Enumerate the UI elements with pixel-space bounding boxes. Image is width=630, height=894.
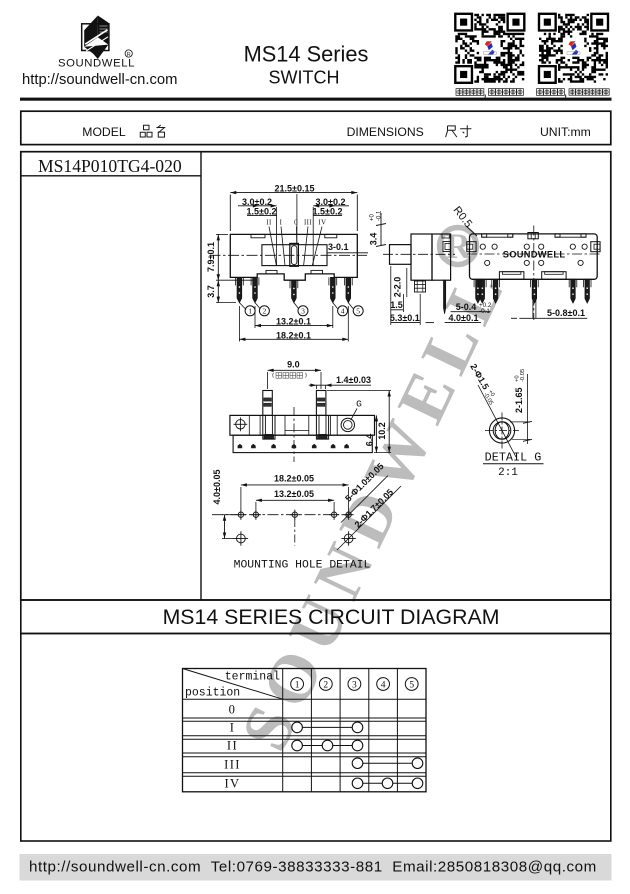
svg-text:-0.1: -0.1 [377,210,383,221]
svg-text:1: 1 [295,680,300,690]
svg-text:10.2: 10.2 [377,422,387,440]
svg-text:R: R [127,52,131,58]
svg-text:2-1.65: 2-1.65 [514,387,524,413]
svg-text:I: I [280,220,283,227]
svg-text:4.0±0.1: 4.0±0.1 [449,313,479,323]
svg-text:3: 3 [301,307,305,316]
svg-text:UNIT:mm: UNIT:mm [540,125,591,139]
svg-text:http://soundwell-cn.com: http://soundwell-cn.com [22,72,177,88]
svg-text:+0: +0 [370,213,376,221]
svg-text:7.9±0.1: 7.9±0.1 [206,242,216,272]
svg-text:SOUNDWELL: SOUNDWELL [58,58,135,70]
svg-text:1: 1 [248,307,252,316]
svg-text:0: 0 [294,220,298,227]
svg-text:II: II [266,220,272,227]
svg-text:5.3±0.1: 5.3±0.1 [390,313,420,323]
svg-text:5: 5 [356,307,360,316]
svg-text:0: 0 [229,702,237,716]
svg-text:21.5±0.15: 21.5±0.15 [275,184,315,194]
svg-text:3.7: 3.7 [206,285,216,298]
svg-text:5-0.8±0.1: 5-0.8±0.1 [547,308,585,318]
svg-text:R: R [445,226,472,266]
svg-text:2:1: 2:1 [498,467,518,479]
svg-text:2: 2 [263,307,267,316]
svg-text:position: position [185,687,240,700]
svg-text:4.0±0.05: 4.0±0.05 [212,470,222,505]
svg-text:terminal: terminal [225,671,280,684]
svg-text:2-2.0: 2-2.0 [393,277,403,298]
svg-text:http://soundwell-cn.com Tel:0: http://soundwell-cn.com Tel:0769-3883333… [29,859,597,876]
svg-text:MS14 Series: MS14 Series [244,42,369,67]
svg-text:5-0.4: 5-0.4 [456,302,477,312]
svg-text:4: 4 [381,680,386,690]
svg-text:MS14P010TG4-020: MS14P010TG4-020 [38,156,182,176]
svg-text:IV: IV [224,777,240,791]
svg-text:-0.05: -0.05 [520,369,526,382]
svg-text:4: 4 [341,307,345,316]
svg-text:3.4: 3.4 [369,233,379,246]
svg-text:III: III [224,758,241,772]
svg-text:I: I [230,721,236,735]
svg-text:DIMENSIONS: DIMENSIONS [347,125,424,139]
svg-text:MS14 SERIES CIRCUIT DIAGRAM: MS14 SERIES CIRCUIT DIAGRAM [163,605,500,629]
svg-text:IV: IV [319,220,327,227]
svg-text:3-0.1: 3-0.1 [328,242,349,252]
svg-text:9.0: 9.0 [287,359,300,369]
svg-text:3: 3 [352,680,357,690]
svg-text:III: III [304,220,312,227]
svg-text:13.2±0.05: 13.2±0.05 [274,489,314,499]
svg-text:DETAIL G: DETAIL G [485,450,542,464]
svg-text:G: G [356,399,362,410]
svg-text:SWITCH: SWITCH [269,68,340,88]
svg-text:5: 5 [409,680,414,690]
svg-text:MODEL: MODEL [82,125,126,139]
svg-text:2: 2 [323,680,328,690]
svg-text:18.2±0.05: 18.2±0.05 [274,474,314,484]
svg-text:1.4±0.03: 1.4±0.03 [336,375,371,385]
svg-text:6.4: 6.4 [365,434,375,447]
svg-text:1.5: 1.5 [390,300,403,310]
svg-text:MOUNTING HOLE DETAIL: MOUNTING HOLE DETAIL [234,560,371,572]
svg-text:II: II [227,738,238,752]
